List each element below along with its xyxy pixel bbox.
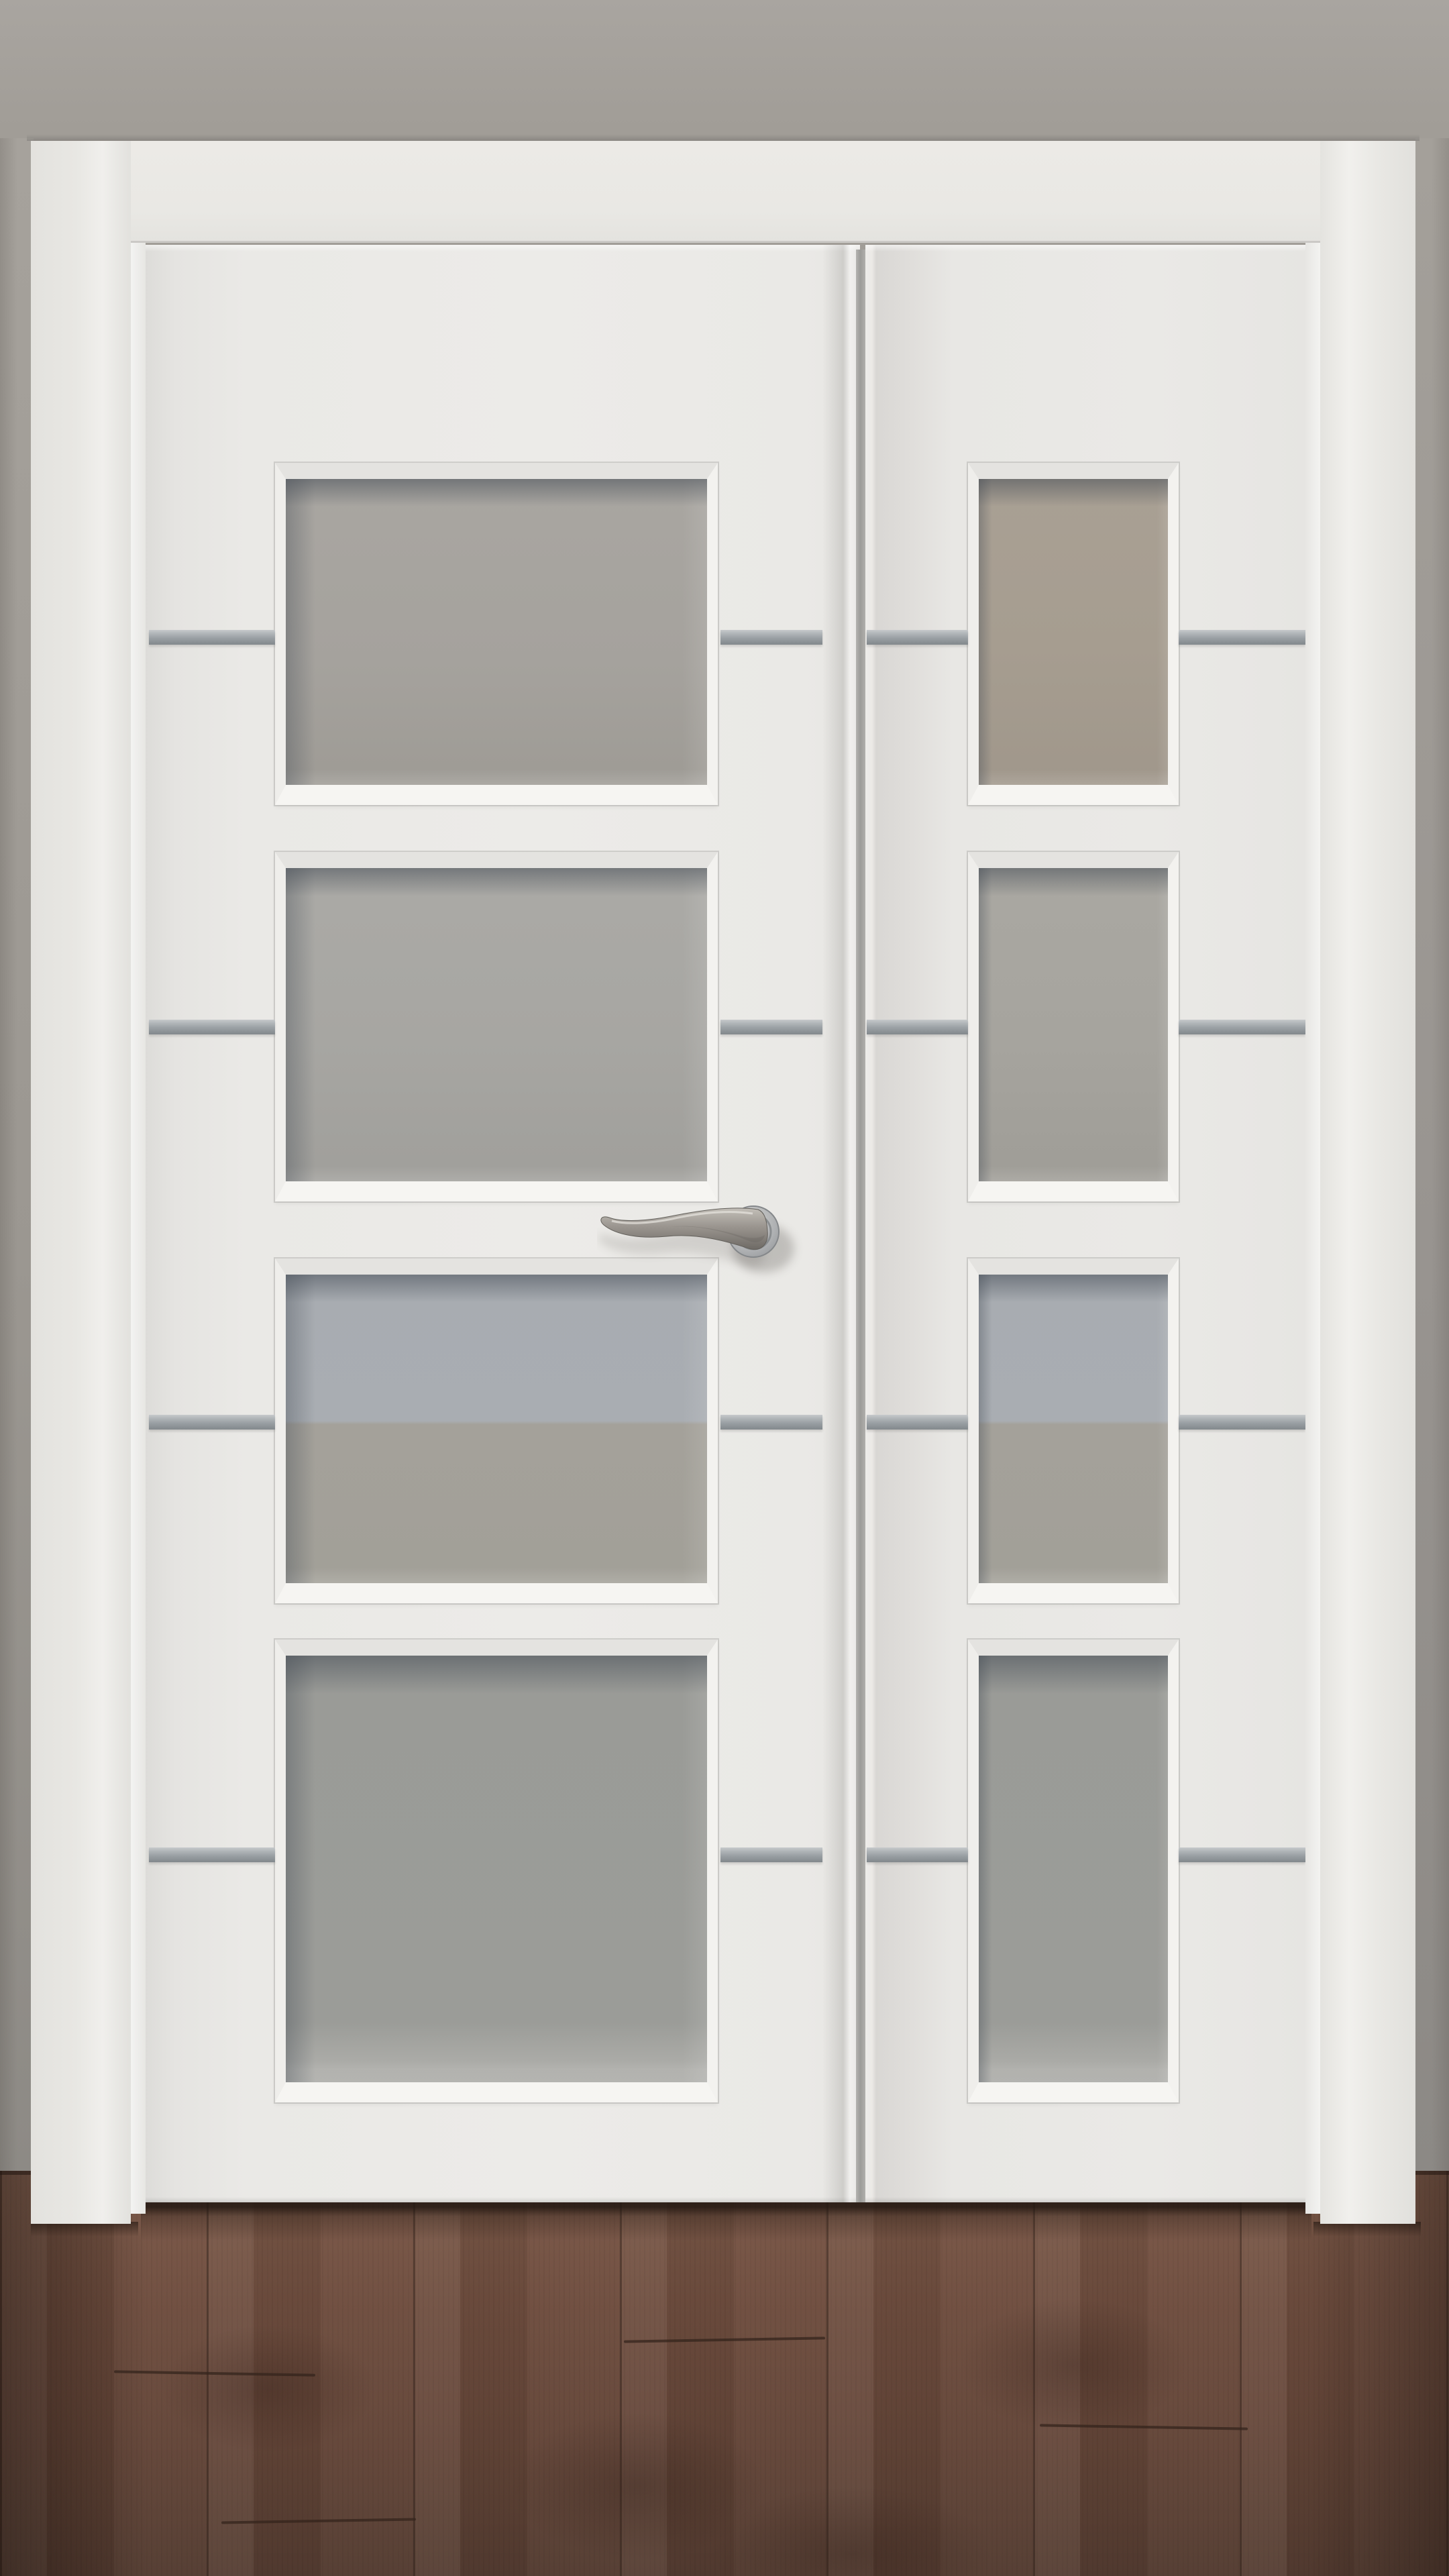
aluminium-strip <box>720 1020 822 1034</box>
door-handle <box>597 1183 818 1283</box>
left-jamb-reveal <box>131 243 146 2214</box>
glass-panel-right-4 <box>968 1640 1179 2102</box>
glass-panel-left-2 <box>275 852 718 1201</box>
glass-inner-shadow <box>286 1656 707 2082</box>
aluminium-strip <box>149 630 275 645</box>
plank-end-joint <box>221 2518 416 2524</box>
shadow-under-doors <box>141 2199 1311 2241</box>
aluminium-strip <box>149 1415 275 1430</box>
plank-end-joint <box>624 2337 825 2343</box>
wall-right-of-frame <box>1415 138 1449 2171</box>
frame-left-jamb <box>31 141 131 2224</box>
glass-panel-left-1 <box>275 463 718 805</box>
aluminium-strip <box>149 1847 275 1862</box>
glass-inner-shadow <box>286 479 707 785</box>
aluminium-strip <box>1179 1415 1305 1430</box>
glass-inner-shadow <box>979 1656 1168 2082</box>
aluminium-strip <box>867 630 968 645</box>
gap-between-doors <box>856 250 865 2202</box>
meeting-stile-bevel <box>822 245 856 2202</box>
aluminium-strip <box>1179 1847 1305 1862</box>
shadow-under-right-jamb <box>1313 2222 1421 2237</box>
glass-inner-shadow <box>979 479 1168 785</box>
wood-grain-knot <box>161 2325 376 2453</box>
frame-right-jamb <box>1320 141 1415 2224</box>
shadow-under-left-jamb <box>31 2222 138 2237</box>
aluminium-strip <box>867 1020 968 1034</box>
frosted-glass <box>286 1656 707 2082</box>
wall-above-frame <box>0 0 1449 142</box>
glass-panel-right-2 <box>968 852 1179 1201</box>
frosted-glass <box>979 868 1168 1181</box>
aluminium-strip <box>720 1847 822 1862</box>
aluminium-strip <box>867 1847 968 1862</box>
glass-panel-right-1 <box>968 463 1179 805</box>
glass-panel-right-3 <box>968 1258 1179 1603</box>
wall-left-of-frame <box>0 138 34 2171</box>
frame-head-casing <box>31 141 1415 243</box>
right-jamb-reveal <box>1305 243 1320 2214</box>
frosted-glass <box>286 1275 707 1583</box>
aluminium-strip <box>149 1020 275 1034</box>
frosted-glass <box>979 1656 1168 2082</box>
glass-inner-shadow <box>979 868 1168 1181</box>
wall-frame-contact-shadow <box>27 134 1419 141</box>
frosted-glass <box>286 479 707 785</box>
aluminium-strip <box>1179 1020 1305 1034</box>
frosted-glass <box>979 479 1168 785</box>
glass-inner-shadow <box>286 1275 707 1583</box>
glass-inner-shadow <box>286 868 707 1181</box>
frosted-glass <box>979 1275 1168 1583</box>
glass-panel-left-4 <box>275 1640 718 2102</box>
wood-grain-knot <box>959 2298 1187 2432</box>
glass-inner-shadow <box>979 1275 1168 1583</box>
glass-panel-left-3 <box>275 1258 718 1603</box>
aluminium-strip <box>867 1415 968 1430</box>
photo-of-double-door <box>0 0 1449 2576</box>
aluminium-strip <box>720 630 822 645</box>
aluminium-strip <box>720 1415 822 1430</box>
frosted-glass <box>286 868 707 1181</box>
aluminium-strip <box>1179 630 1305 645</box>
